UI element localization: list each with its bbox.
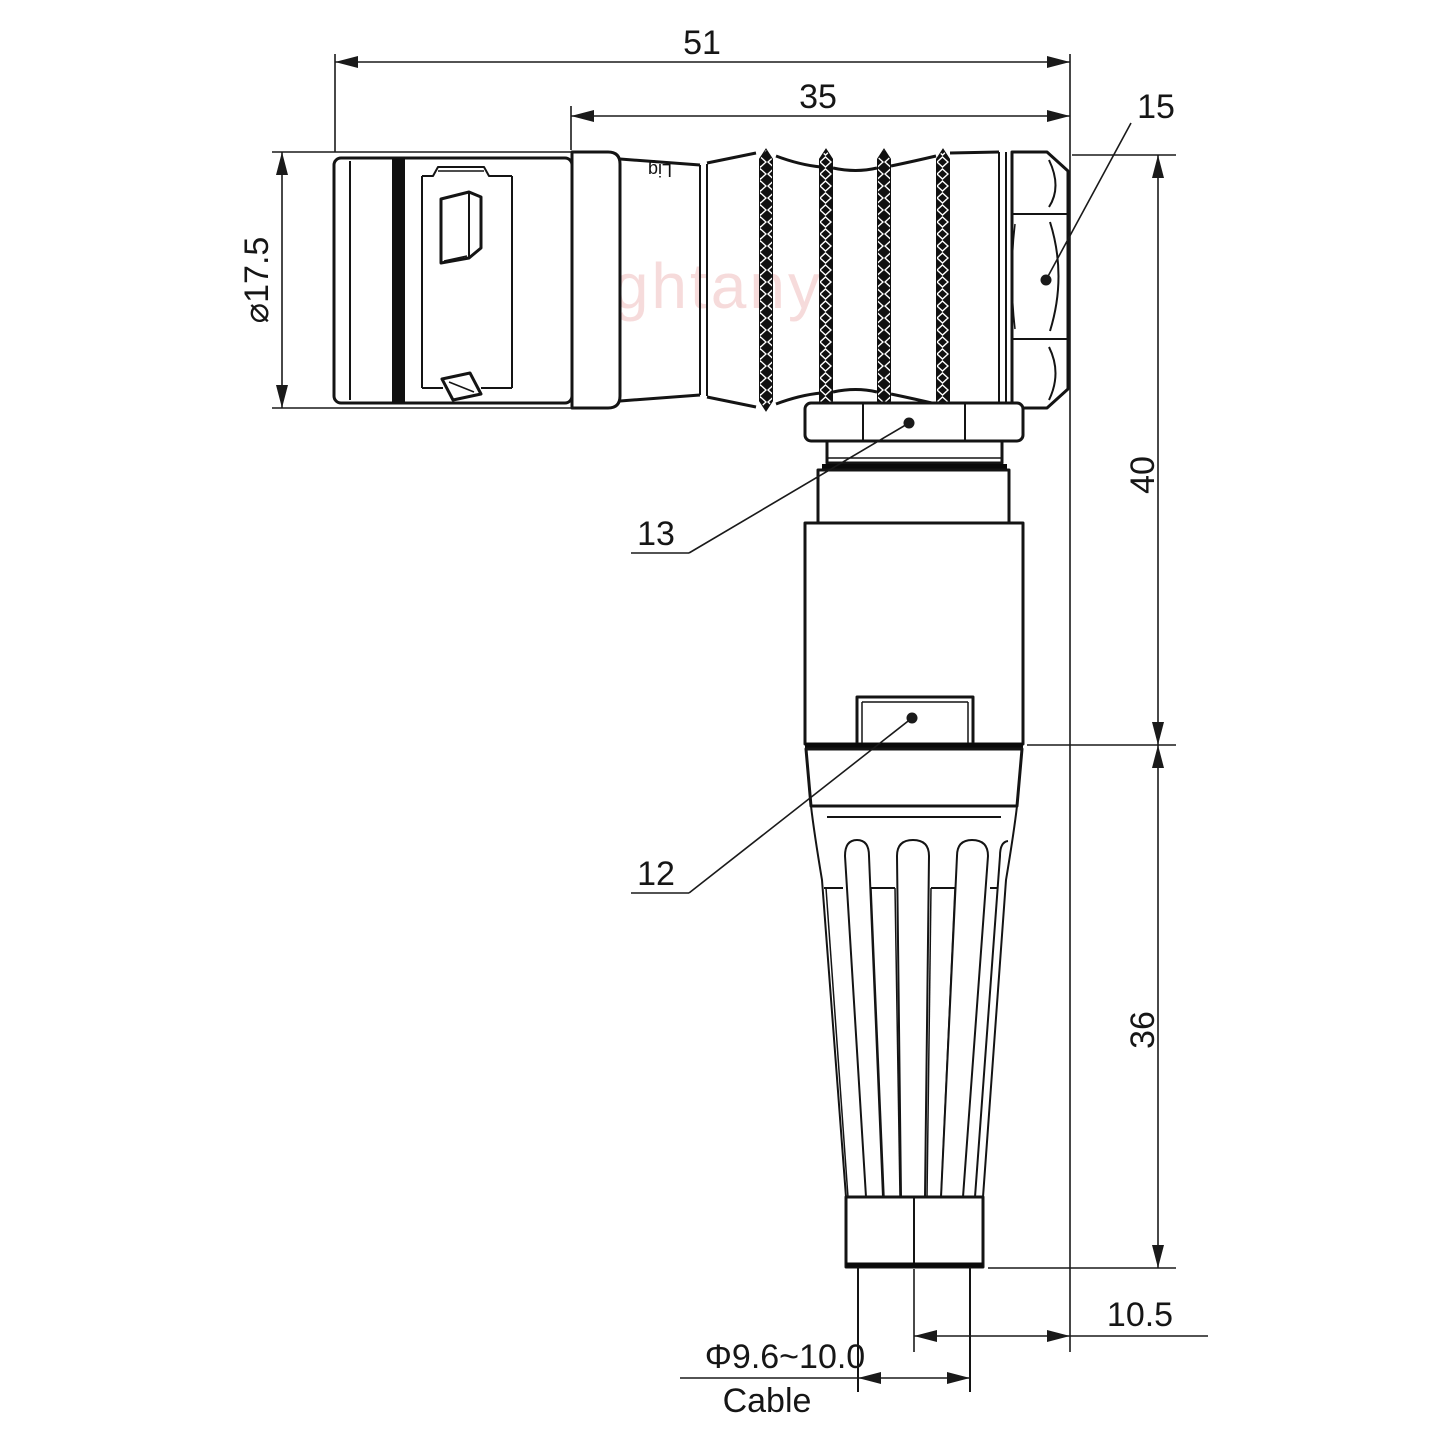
dim-upper-height: 40 [1072,155,1176,745]
dim-cable-diameter-value: Φ9.6~10.0 [705,1338,865,1376]
drawing-page: Lightany L [0,0,1440,1440]
dim-cable-offset-value: 10.5 [1107,1296,1173,1334]
boot-shoulder [806,749,1022,817]
callout-coupling-nut-value: 13 [637,515,675,553]
dim-lower-height: 36 [988,745,1176,1268]
dim-cable-diameter: Φ9.6~10.0 Cable [680,1338,970,1420]
knurl-band [820,149,833,411]
callout-coupling-nut-dot [904,418,915,429]
elbow-body [805,403,1023,1392]
cable-label: Cable [723,1382,812,1420]
hex-nut [1012,152,1068,408]
front-sleeve-band [392,158,405,403]
dim-upper-height-value: 40 [1124,456,1162,494]
dim-overall-length-value: 51 [683,24,721,62]
callout-hex-nut-dot [1041,275,1052,286]
front-ring [572,152,620,408]
technical-drawing-canvas: Lightany L [0,0,1440,1440]
dim-front-diameter-value: ⌀17.5 [238,237,276,324]
neck [822,441,1007,467]
knurl-band [760,149,773,411]
cable-end-cap [846,1197,983,1267]
strain-relief-boot [811,806,1017,1197]
knurl-band [878,149,891,411]
callout-hex-nut-value: 15 [1137,88,1175,126]
knurl-band [937,149,950,411]
body-print-text: Lig [648,160,672,180]
plug-barrel: Lig [334,149,1068,411]
dim-rear-length-value: 35 [799,78,837,116]
dim-rear-length: 35 [571,78,1070,150]
shoulder [818,470,1009,523]
dim-cable-offset: 10.5 [914,1269,1208,1352]
callout-latch-dot [907,713,918,724]
callout-latch-value: 12 [637,855,675,893]
latch-window [441,192,481,263]
dim-lower-height-value: 36 [1124,1011,1162,1049]
